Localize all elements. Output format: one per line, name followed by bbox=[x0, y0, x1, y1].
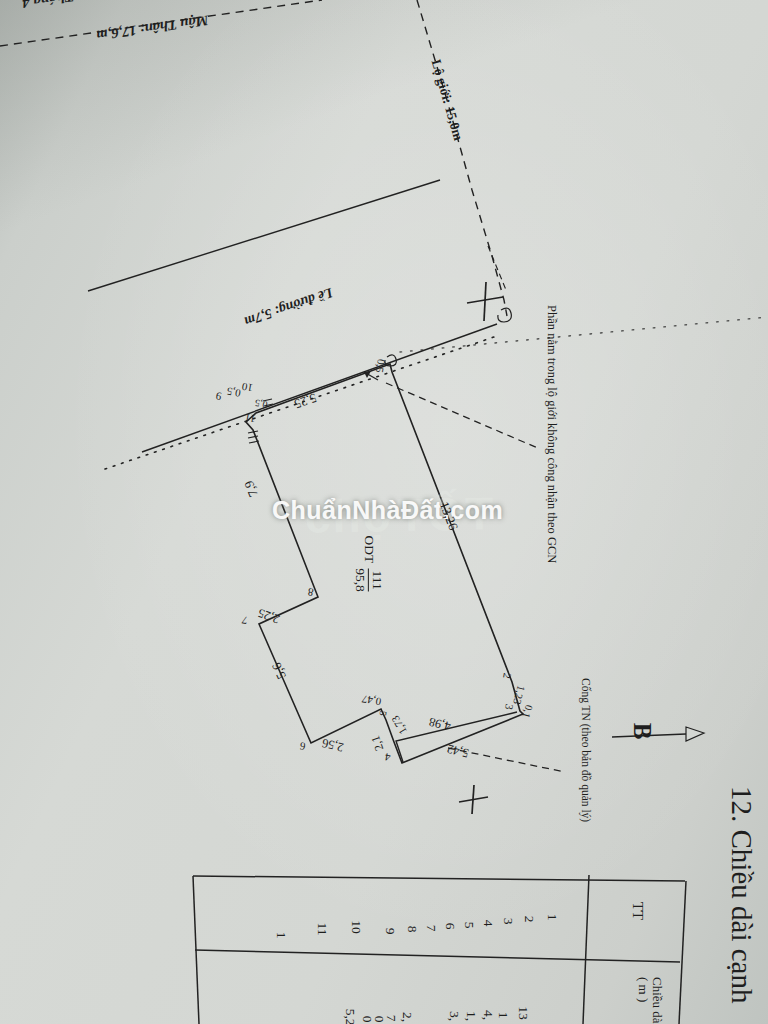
table-tt-12: 1 bbox=[274, 932, 288, 939]
table-val-11: 5,2 bbox=[342, 1009, 356, 1024]
table-tt-11: 11 bbox=[314, 923, 328, 936]
table-val-2: 1 bbox=[496, 1012, 510, 1019]
edge-label-047: 0,47 bbox=[361, 692, 382, 707]
parcel-outline bbox=[246, 364, 523, 763]
vertex1-arrow-head bbox=[364, 371, 371, 378]
table-tt-7: 7 bbox=[424, 925, 438, 932]
table-val-5: 3, bbox=[447, 1011, 461, 1021]
table-val-10: 0 bbox=[360, 1016, 374, 1023]
grid-cross-bottom bbox=[459, 785, 488, 814]
section-title: 12. Chiều dài cạnh bbox=[727, 786, 757, 1003]
table-tt-3: 3 bbox=[501, 918, 515, 925]
table-header-length: Chiều dài cạnh ( m ) bbox=[637, 977, 664, 1024]
table-tt-6: 6 bbox=[443, 923, 457, 930]
table-borders bbox=[193, 875, 686, 1024]
road-lower-edge bbox=[142, 324, 497, 452]
edge-label-05-a: 0,5 bbox=[226, 385, 242, 399]
culvert-note: Cống TN (theo bản đồ quản lý) bbox=[580, 678, 592, 822]
edge-label-05-v1: 0,5 bbox=[373, 358, 387, 374]
survey-photo-page: { "streets": { "street_top_cut": "Tháng … bbox=[0, 0, 768, 1024]
north-label: B bbox=[629, 723, 655, 740]
table-tt-8: 8 bbox=[405, 926, 419, 933]
road-upper-edge bbox=[88, 180, 440, 291]
table-val-1: 13 bbox=[516, 1006, 530, 1020]
edge-label-05-b: 0,5 bbox=[254, 397, 268, 410]
plot-area: 95,8 bbox=[353, 568, 368, 592]
table-tt-1: 1 bbox=[545, 914, 559, 921]
table-header-length-line1: Chiều dài cạnh bbox=[650, 977, 664, 1024]
table-tt-2: 2 bbox=[522, 916, 536, 923]
vertex-label-10: 10 bbox=[241, 380, 254, 393]
table-val-3: 4, bbox=[481, 1010, 495, 1020]
table-val-7: 2, bbox=[400, 1012, 414, 1022]
site-watermark: ChuẩnNhàĐất.com bbox=[272, 496, 503, 525]
dashed-parallel-jog bbox=[488, 246, 506, 290]
table-tt-4: 4 bbox=[481, 920, 495, 927]
table-tt-10: 10 bbox=[349, 920, 363, 934]
parcel-label: ODT11195,8 bbox=[353, 535, 384, 591]
in-boundary-note: Phần nằm trong lộ giới không công nhận t… bbox=[545, 305, 558, 563]
plot-number: 111 bbox=[368, 568, 384, 592]
plot-area-fraction: 11195,8 bbox=[353, 568, 384, 592]
table-tt-5: 5 bbox=[462, 922, 476, 929]
table-header-tt: TT bbox=[629, 902, 645, 920]
vertex-label-11: 11 bbox=[244, 411, 256, 424]
point-marker-road-end bbox=[498, 308, 511, 322]
dashed-lo-gioi-line bbox=[417, 0, 507, 316]
land-use-code: ODT bbox=[362, 535, 377, 563]
vertex-label-3: 3 bbox=[503, 703, 515, 710]
table-val-4: 1, bbox=[464, 1011, 478, 1021]
dotted-boundary-right bbox=[400, 317, 768, 352]
table-tt-9: 9 bbox=[383, 928, 397, 935]
table-header-length-line2: ( m ) bbox=[637, 977, 651, 1024]
north-arrow-head bbox=[686, 727, 704, 741]
